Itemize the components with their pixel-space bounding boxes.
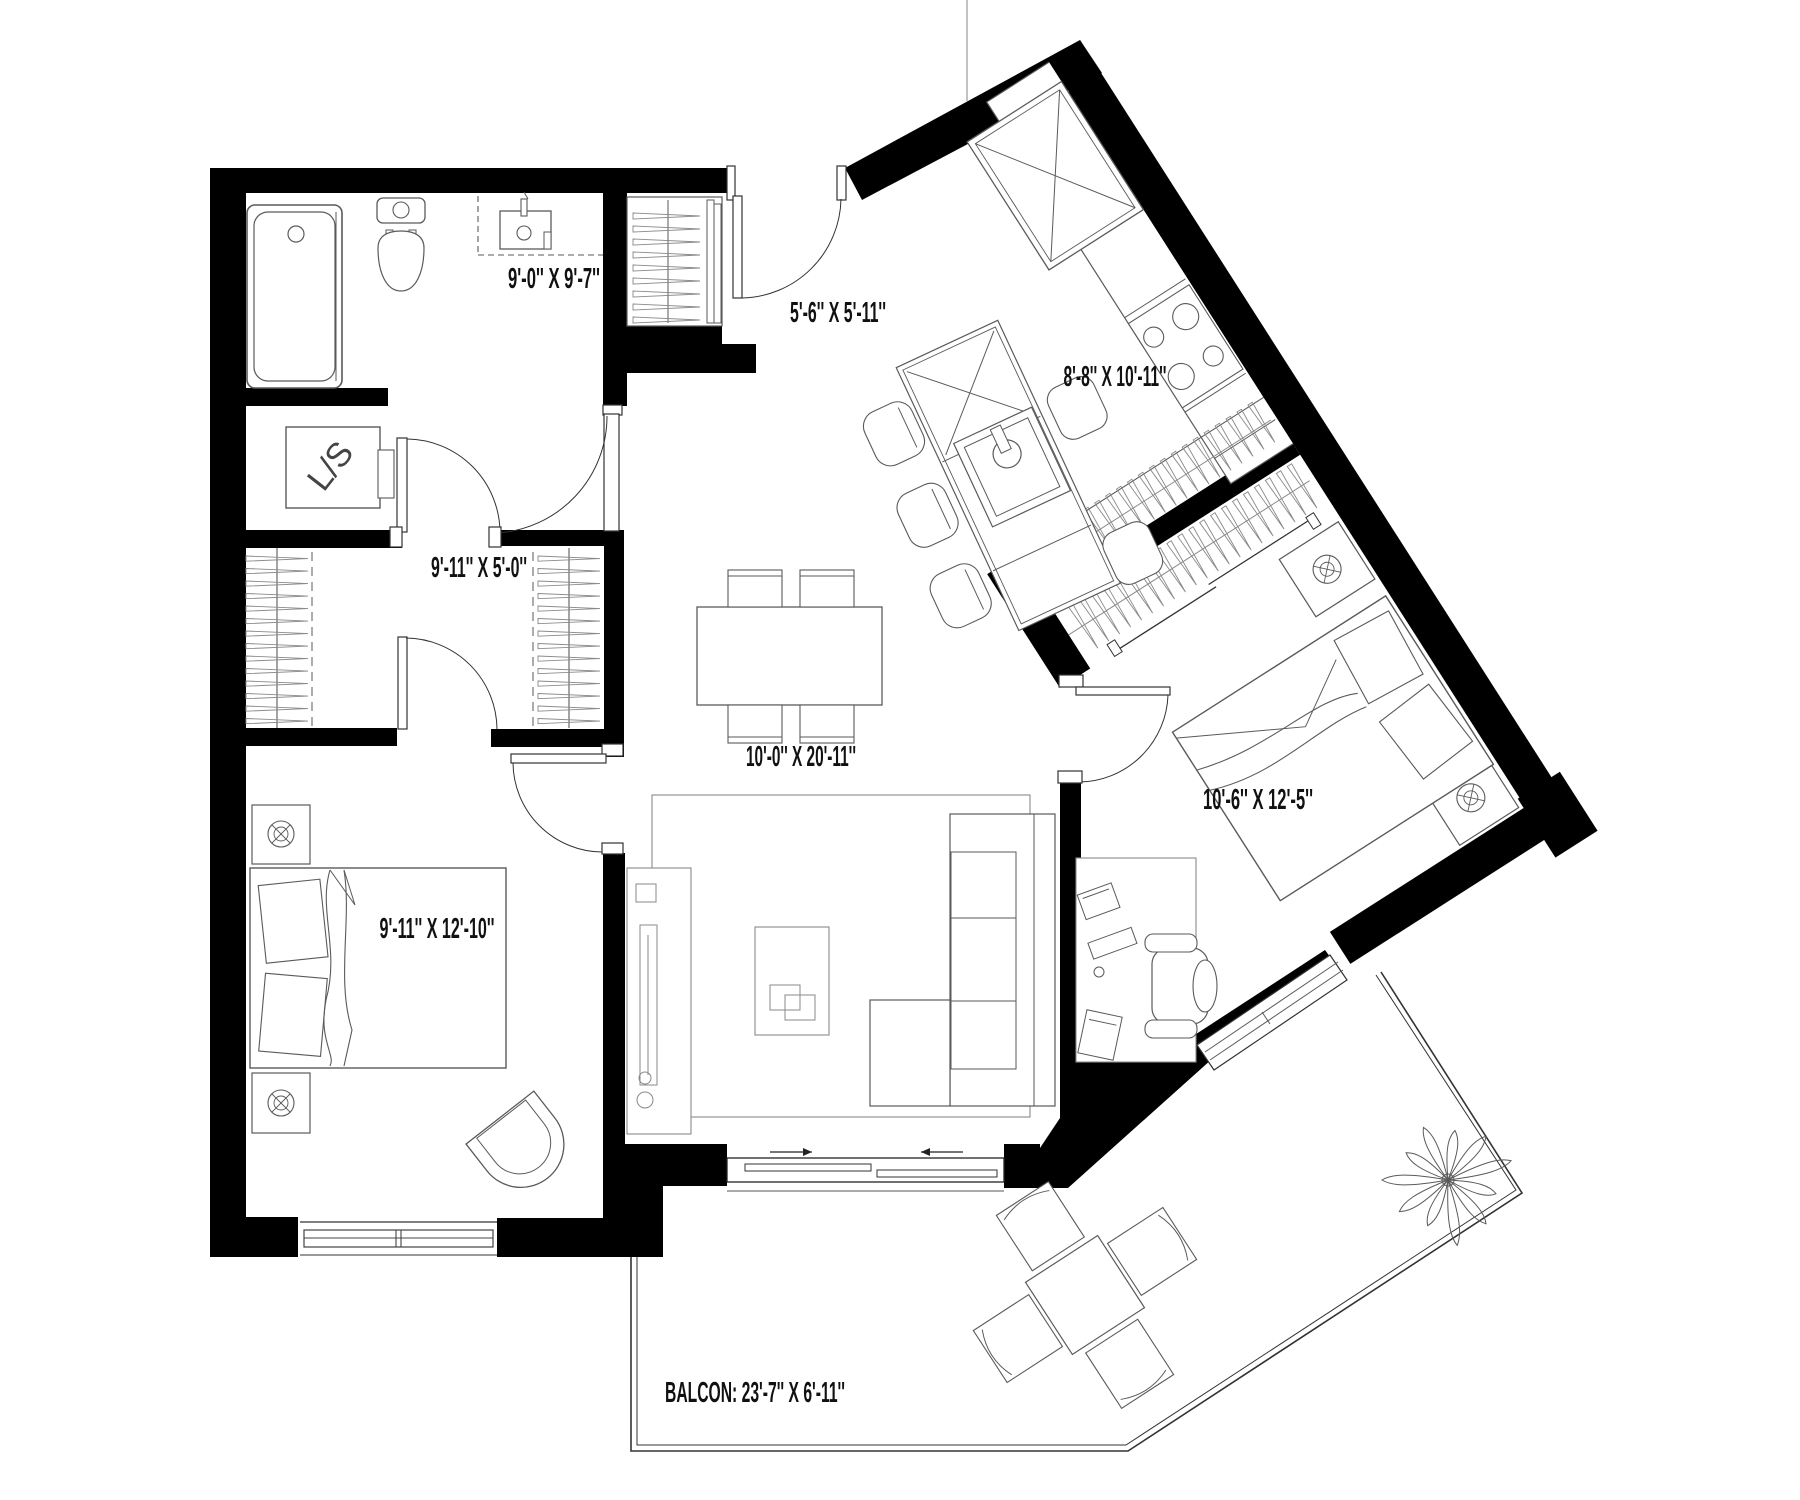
svg-text:8'-8'' X 10'-11'': 8'-8'' X 10'-11'' [1064,361,1167,393]
svg-text:5'-6'' X 5'-11'': 5'-6'' X 5'-11'' [790,297,886,329]
svg-text:10'-0'' X 20'-11'': 10'-0'' X 20'-11'' [746,741,856,773]
svg-text:10'-6'' X 12'-5'': 10'-6'' X 12'-5'' [1203,784,1313,816]
svg-text:9'-11'' X 12'-10'': 9'-11'' X 12'-10'' [380,913,495,945]
svg-text:BALCON: 23'-7'' X 6'-11'': BALCON: 23'-7'' X 6'-11'' [665,1377,845,1409]
svg-text:9'-0'' X 9'-7'': 9'-0'' X 9'-7'' [508,263,600,295]
svg-text:9'-11'' X 5'-0'': 9'-11'' X 5'-0'' [431,552,527,584]
